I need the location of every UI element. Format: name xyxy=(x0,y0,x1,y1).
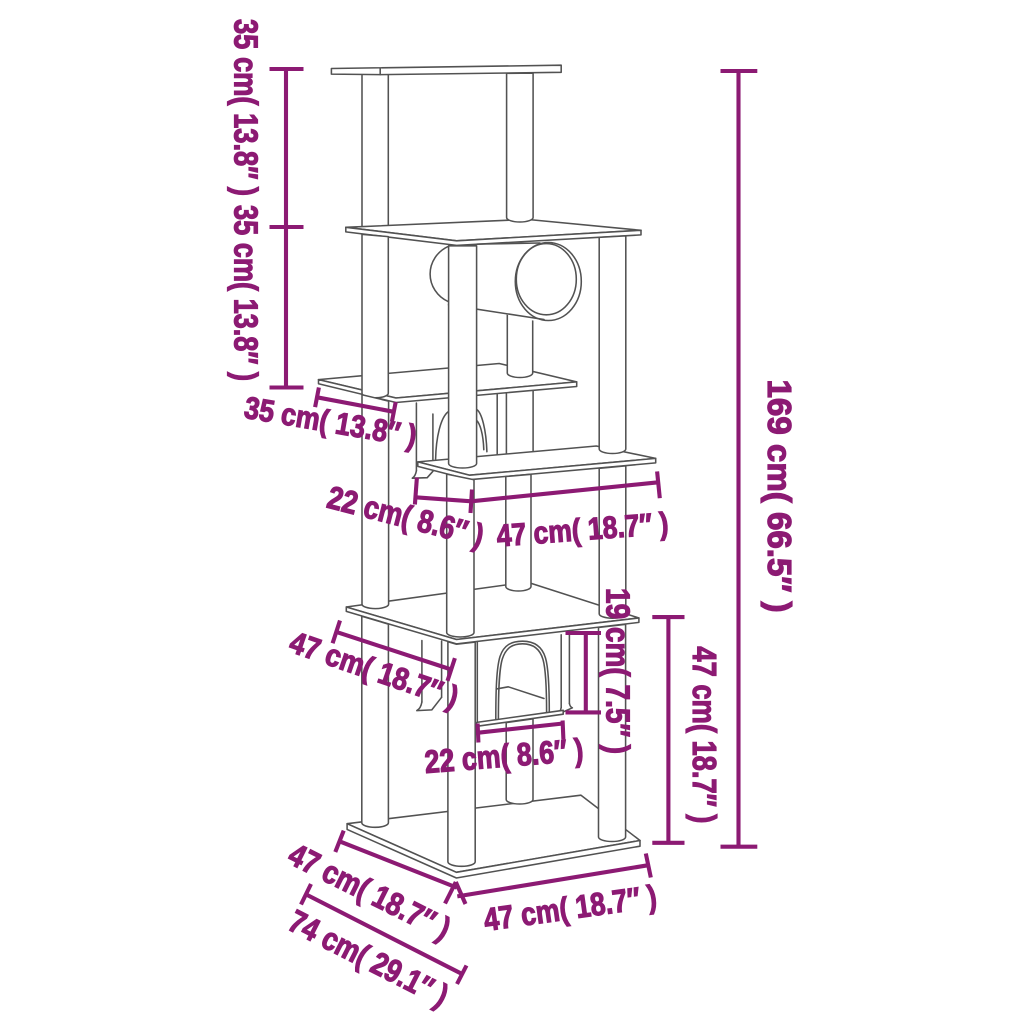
svg-text:35 cm( 13.8″ ): 35 cm( 13.8″ ) xyxy=(228,19,265,196)
svg-text:169 cm( 66.5″ ): 169 cm( 66.5″ ) xyxy=(761,380,798,613)
svg-text:47 cm( 18.7″ ): 47 cm( 18.7″ ) xyxy=(686,646,723,823)
svg-text:19 cm( 7.5″ ): 19 cm( 7.5″ ) xyxy=(600,588,637,754)
svg-text:35 cm( 13.8″ ): 35 cm( 13.8″ ) xyxy=(228,205,265,381)
